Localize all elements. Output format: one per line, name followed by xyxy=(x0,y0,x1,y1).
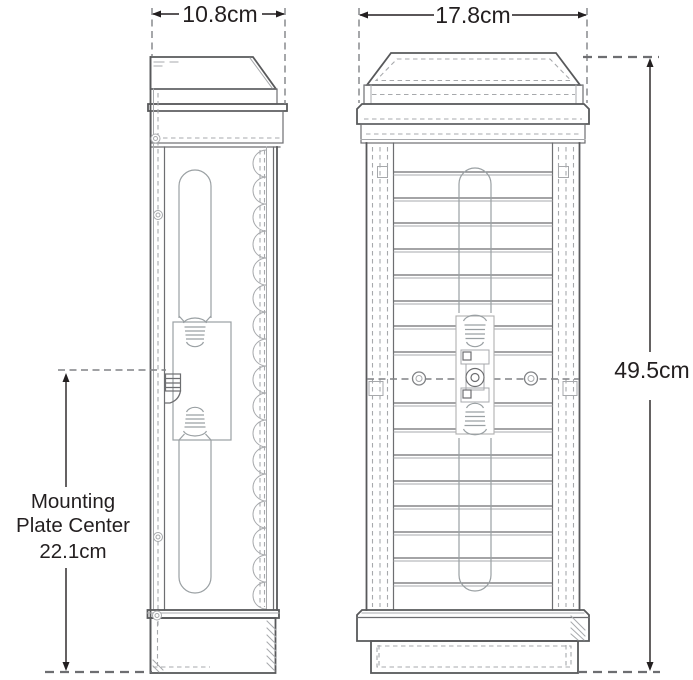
frame-screw xyxy=(525,372,538,385)
drawing-canvas: 10.8cm 17.8cm 49.5cm Mounting Plate Cent… xyxy=(0,0,693,680)
arrow-left-icon xyxy=(152,11,161,18)
plate-screw xyxy=(151,134,160,143)
mounting-label-line1: Mounting xyxy=(31,490,115,513)
side-view-mounting-plate xyxy=(151,57,165,673)
side-view-body xyxy=(253,147,277,610)
arrow-right-icon xyxy=(276,11,285,18)
frame-screw xyxy=(413,372,426,385)
side-view xyxy=(148,57,288,673)
plate-screw xyxy=(154,533,163,542)
front-view-cap xyxy=(357,53,589,143)
front-view-bulb-upper xyxy=(459,168,491,313)
front-view-bulb-lower xyxy=(459,438,491,591)
front-view-socket xyxy=(456,315,494,434)
arrow-up-icon xyxy=(63,373,70,382)
arrow-left-icon xyxy=(359,12,368,19)
base-screw xyxy=(153,611,162,620)
technical-drawing: 10.8cm 17.8cm 49.5cm Mounting Plate Cent… xyxy=(0,0,693,680)
frame-tab xyxy=(369,382,383,396)
frame-tab xyxy=(559,167,569,178)
mounting-label-line3: 22.1cm xyxy=(39,540,106,563)
dimension-mounting-plate-center: Mounting Plate Center 22.1cm xyxy=(16,370,166,672)
arrow-right-icon xyxy=(578,12,587,19)
front-view-base xyxy=(357,610,589,673)
center-knob xyxy=(466,369,484,387)
arrow-up-icon xyxy=(647,58,654,67)
frame-tab xyxy=(378,167,388,178)
dimension-label-overall-height: 49.5cm xyxy=(614,357,689,383)
frame-tab xyxy=(563,382,577,396)
arrow-down-icon xyxy=(647,662,654,671)
side-view-base xyxy=(148,610,280,673)
side-view-bulb-upper xyxy=(179,170,211,347)
side-view-socket xyxy=(173,322,231,440)
plate-screw xyxy=(154,211,163,220)
dimension-label-side-width: 10.8cm xyxy=(182,1,257,27)
front-view xyxy=(357,53,589,673)
dimension-overall-height: 49.5cm xyxy=(578,57,690,672)
side-view-cap xyxy=(148,57,287,147)
arrow-down-icon xyxy=(63,662,70,671)
section-hatch xyxy=(571,616,585,640)
mounting-label-line2: Plate Center xyxy=(16,514,130,537)
scallop-trim xyxy=(253,150,266,609)
dimension-label-front-width: 17.8cm xyxy=(435,2,510,28)
